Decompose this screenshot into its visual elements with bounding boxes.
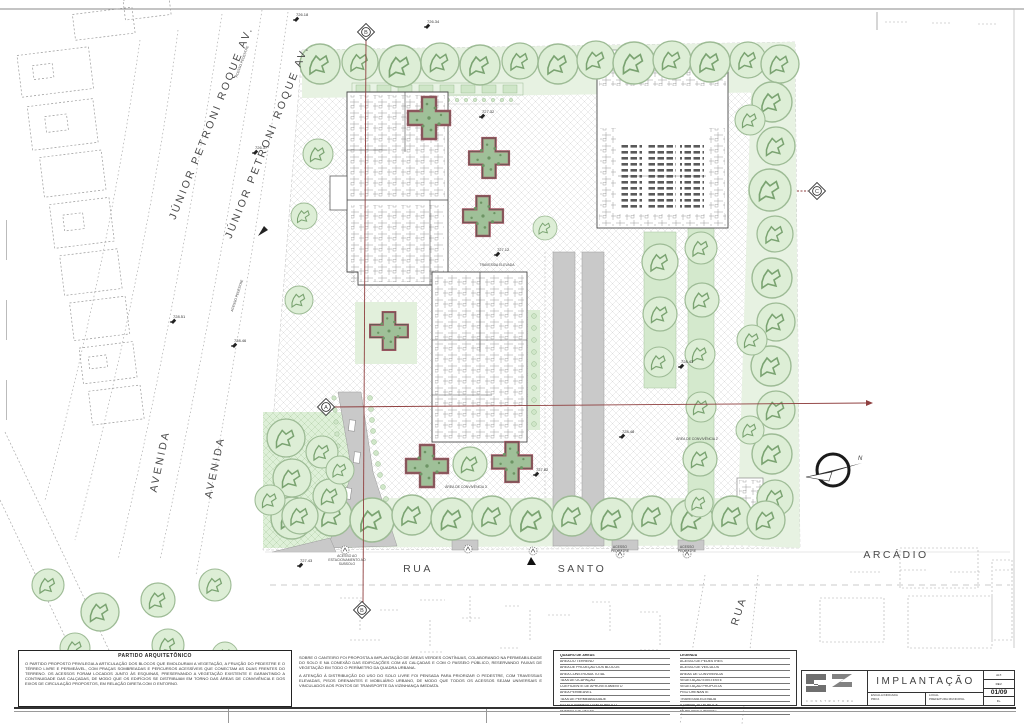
legend-row: ÁREA CONSTRUÍDA TOTAL — [560, 673, 670, 678]
marker-b-bottom: B — [360, 608, 364, 614]
one-way-arrow — [258, 226, 268, 236]
north-label: N — [858, 456, 863, 462]
north-compass: N — [806, 454, 863, 486]
local-value: PREFEITURA MUNICIPAL — [929, 698, 980, 702]
street-label-avenida-1: AVENIDA — [148, 429, 173, 493]
legend-area-table: QUADRO DE ÁREAS ÁREA DO TERRENO ÁREA DE … — [553, 650, 797, 706]
avenue-road-lines — [45, 10, 288, 575]
notes-title: PARTIDO ARQUITETÔNICO — [25, 653, 285, 659]
spot-elevation: 727.12 — [497, 247, 510, 252]
notes-paragraph-2: A ATENÇÃO À DISTRIBUIÇÃO DO USO DO SOLO … — [299, 673, 542, 689]
logo-glyph — [802, 671, 858, 695]
legend-row: VEGETAÇÃO EXISTENTE — [680, 679, 790, 684]
legend-row: TRAVESSIA ELEVADA — [680, 698, 790, 703]
street-label-rua-side: RUA — [729, 595, 750, 627]
spot-elevation: 728.51 — [173, 314, 186, 319]
legend-row: QUADRO DE ÁREAS — [560, 654, 670, 659]
street-label-santo: SANTO — [558, 563, 606, 575]
local-cell: LOCAL PREFEITURA MUNICIPAL — [925, 693, 983, 705]
legend-right-column: LEGENDA ACESSO DE PEDESTRES ACESSO DE VE… — [680, 654, 790, 702]
spot-elevation: 727.82 — [536, 467, 549, 472]
legend-row: ACESSO DE PEDESTRES — [680, 660, 790, 665]
sheet-number: 01/09 — [984, 689, 1014, 698]
title-block: C O N S T R U T O R A IMPLANTAÇÃO ESCALA… — [801, 670, 1015, 706]
seating-rows — [620, 142, 642, 208]
office-logo: C O N S T R U T O R A — [802, 671, 868, 705]
spot-elevation: 728.43 — [681, 359, 694, 364]
spot-elevation: 728.46 — [234, 338, 247, 343]
title-block-center: IMPLANTAÇÃO ESCALA INDICADA PROJ. LOCAL … — [868, 671, 984, 705]
spot-elevation: 727.32 — [482, 109, 495, 114]
legend-row: ÁREAS DE CONVIVÊNCIA — [680, 673, 790, 678]
frame-tick — [486, 709, 487, 723]
label-travessia-elevada: TRAVESSIA ELEVADA — [480, 263, 516, 267]
scale-cell: ESCALA INDICADA PROJ. — [868, 693, 925, 705]
street-label-avenida-2: AVENIDA — [203, 435, 228, 499]
street-label-rua: RUA — [403, 563, 433, 575]
legend-row: TAXA DE OCUPAÇÃO — [560, 679, 670, 684]
title-block-row-fl: FL. — [984, 697, 1014, 705]
frame-tick — [228, 709, 229, 723]
title-block-right-column: ALT. REV. 01/09 FL. — [984, 671, 1014, 705]
label-area-convivencia-2: ÁREA DE CONVIVÊNCIA 2 — [676, 436, 718, 441]
legend-left-column: QUADRO DE ÁREAS ÁREA DO TERRENO ÁREA DE … — [560, 654, 670, 702]
legend-row: LEGENDA — [680, 654, 790, 659]
label-acesso-subsolo-3: SUBSOLO — [339, 562, 356, 566]
building-center — [432, 272, 527, 442]
title-block-row-alt: ALT. — [984, 671, 1014, 680]
label-area-convivencia-3: ÁREA DE CONVIVÊNCIA 3 — [445, 484, 487, 489]
existing-buildings-west — [12, 0, 220, 429]
notes-partido-arquitetonico: PARTIDO ARQUITETÔNICO O PARTIDO PROPOSTO… — [18, 650, 292, 707]
arrow-symbol — [527, 557, 536, 565]
label-acesso-pedestre-west-2: ACESSO PEDESTRE — [230, 279, 244, 313]
title-block-row-rev: REV. — [984, 680, 1014, 689]
legend-row: PISO DRENANTE — [680, 691, 790, 696]
sheet-bottom-border — [14, 707, 1016, 709]
legend-row: VEGETAÇÃO PROPOSTA — [680, 685, 790, 690]
notes-paragraph-1: SOBRE O CANTEIRO FOI PROPOSTA A IMPLANTA… — [299, 655, 542, 671]
notes-text: O PARTIDO PROPOSTO PRIVILEGIA A ARTICULA… — [25, 661, 285, 687]
legend-row: ÁREA DO TERRENO — [560, 660, 670, 665]
legend-row: ÁREA DE PROJEÇÃO DOS BLOCOS — [560, 666, 670, 671]
street-label-arcadio: ARCÁDIO — [863, 548, 928, 561]
label-pedestre-south-1: PEDESTRE — [611, 549, 630, 553]
spot-elevation: 728.48 — [622, 429, 635, 434]
marker-b-top: B — [364, 30, 368, 36]
marker-a: A — [324, 405, 328, 411]
marker-c: C — [815, 189, 819, 195]
spot-elevation: 727.43 — [300, 558, 313, 563]
legend-row: ÁREA PERMEÁVEL — [560, 691, 670, 696]
label-pedestre-south-2: PEDESTRE — [678, 549, 697, 553]
spot-elevation: 726.18 — [296, 12, 309, 17]
sheet-bottom-border-thin — [14, 711, 1016, 712]
scale-value: PROJ. — [871, 698, 922, 702]
legend-row: ACESSO DE VEÍCULOS — [680, 666, 790, 671]
legend-row: TAXA DE PERMEABILIDADE — [560, 698, 670, 703]
site-plan-drawing: B B A C N 726.18 726.34 726.37 727.32 72… — [0, 0, 1024, 724]
spot-elevation: 726.34 — [427, 19, 440, 24]
sheet-title: IMPLANTAÇÃO — [868, 671, 983, 693]
site-plan-sheet: B B A C N 726.18 726.34 726.37 727.32 72… — [0, 0, 1024, 724]
planted-strip-2 — [688, 226, 714, 526]
legend-row: COEFICIENTE DE APROVEITAMENTO — [560, 685, 670, 690]
notes-middle: SOBRE O CANTEIRO FOI PROPOSTA A IMPLANTA… — [299, 655, 542, 705]
logo-caption: C O N S T R U T O R A — [806, 700, 862, 703]
